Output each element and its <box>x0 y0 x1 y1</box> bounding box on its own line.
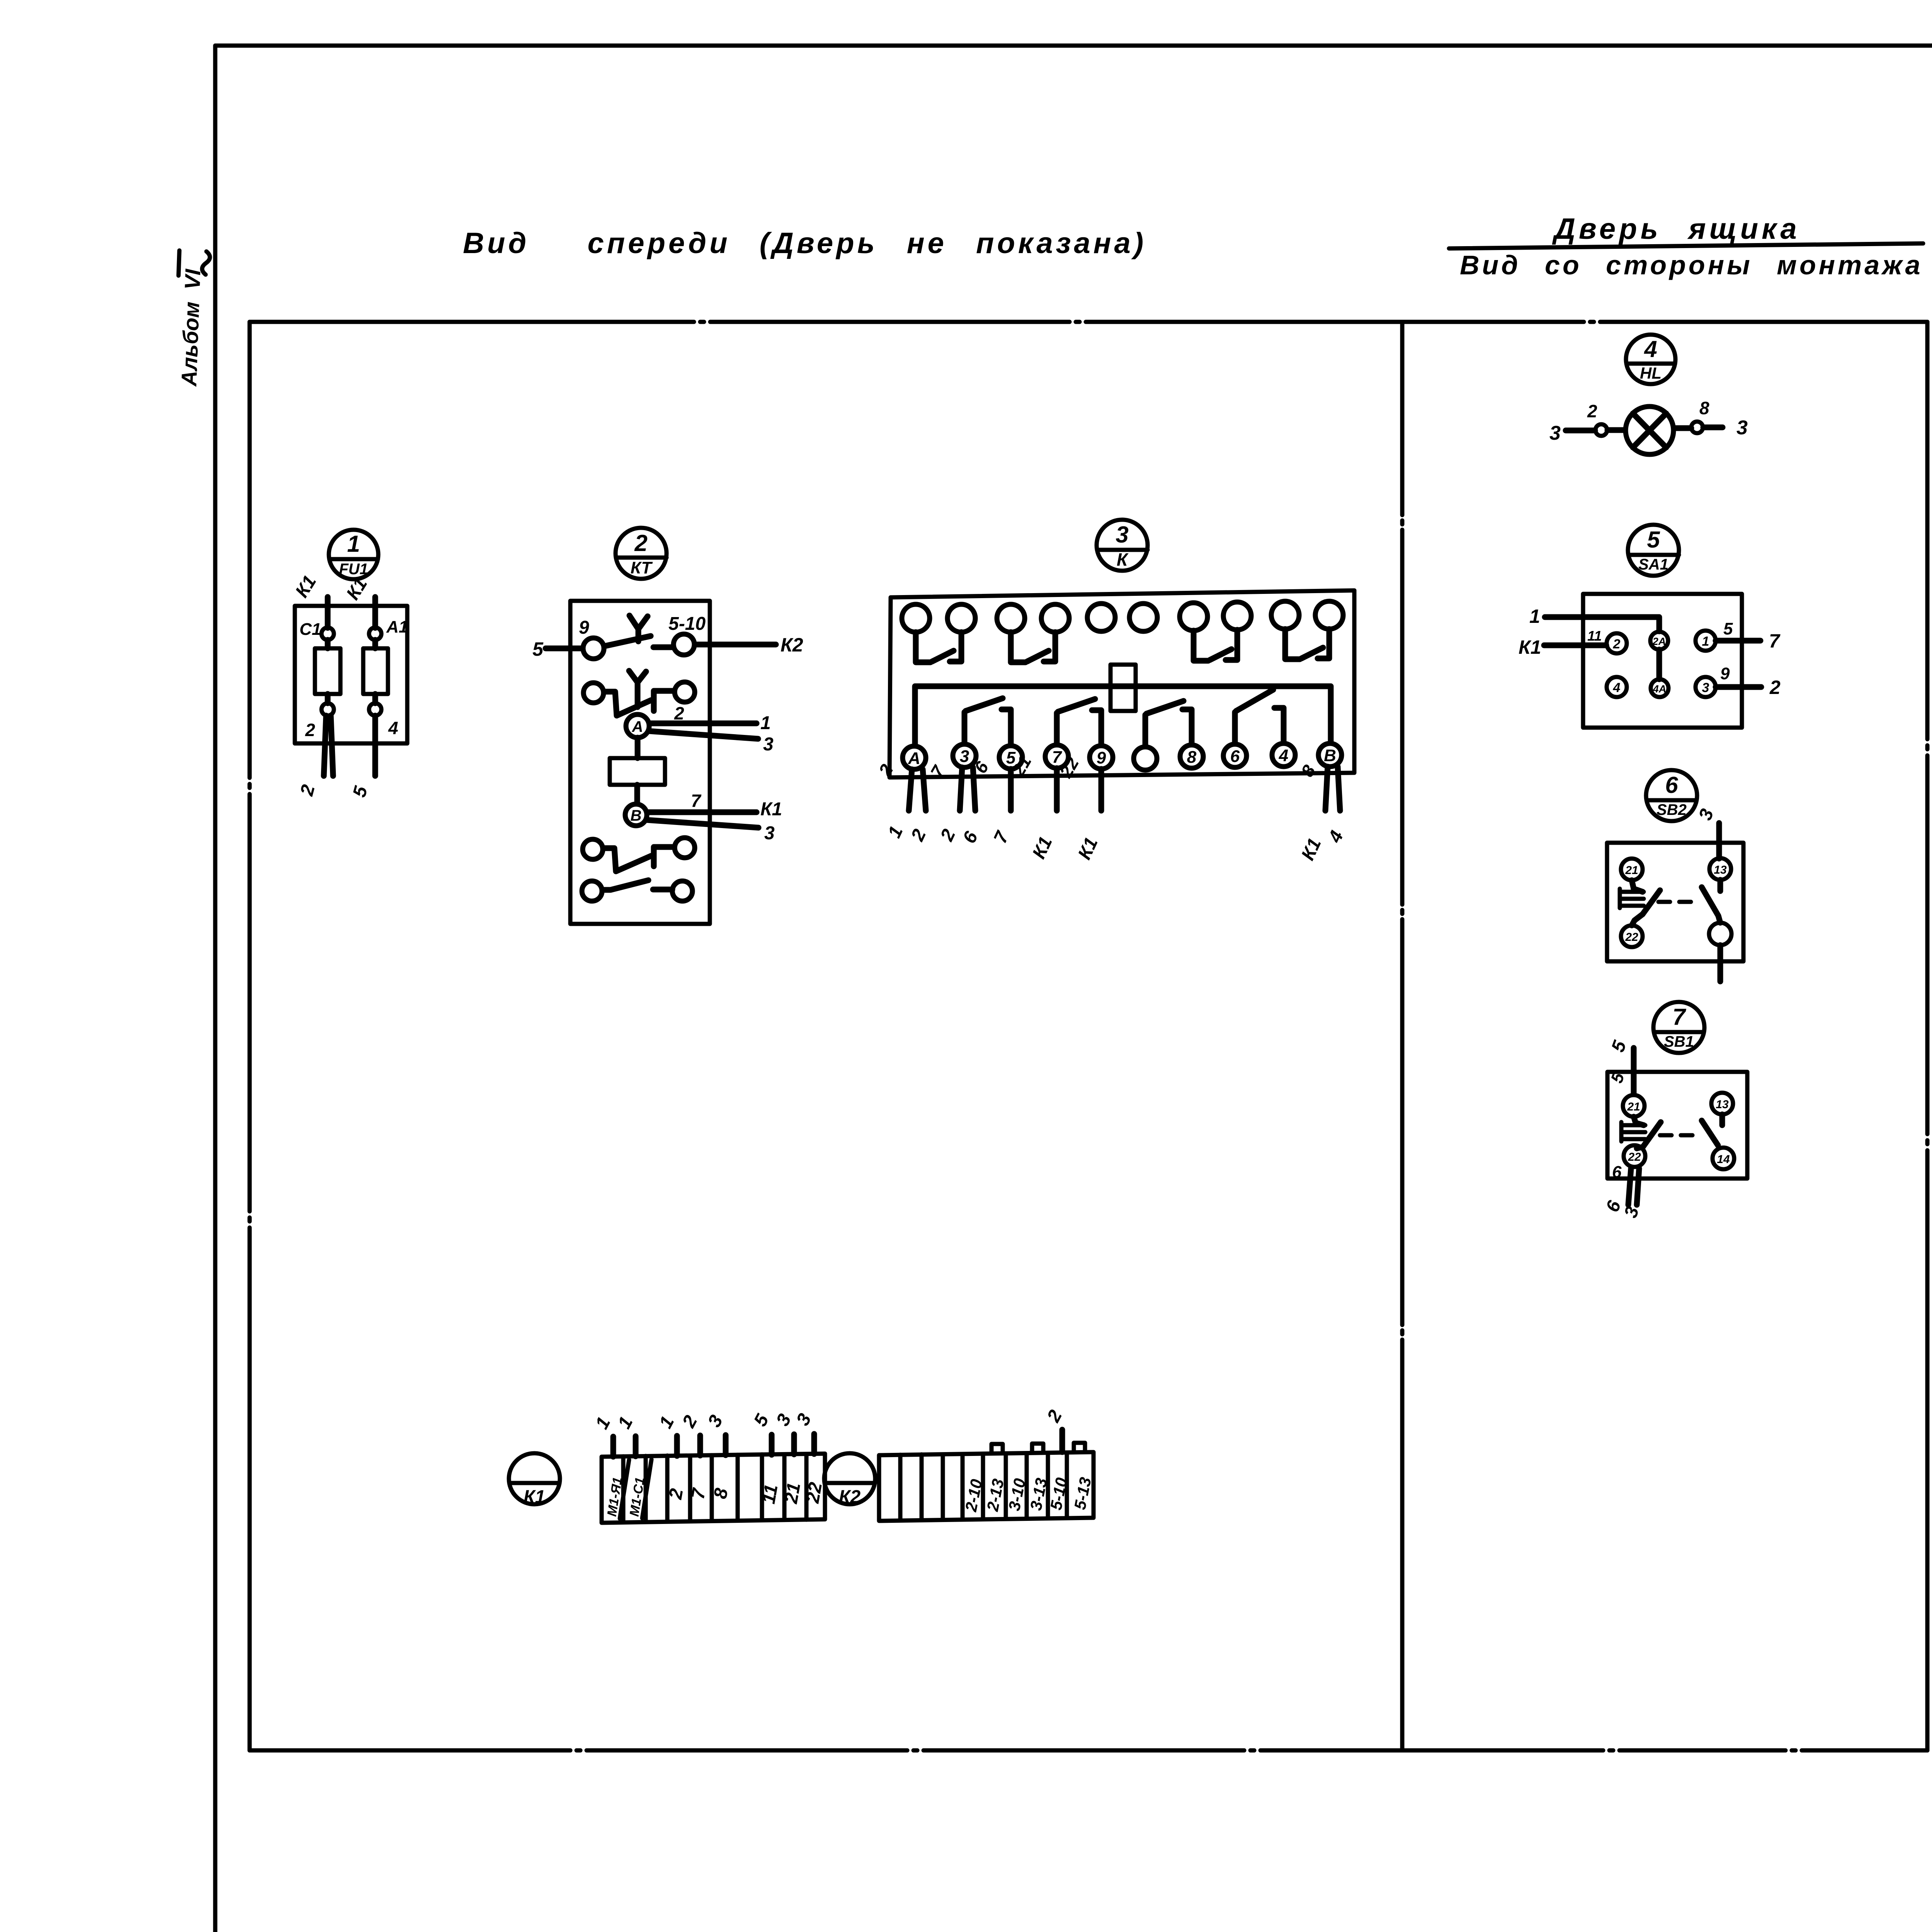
svg-text:11: 11 <box>759 1483 782 1505</box>
svg-text:В: В <box>1324 746 1336 765</box>
svg-text:Вид со стороны монтажа: Вид со стороны монтажа <box>1460 250 1923 280</box>
svg-text:3: 3 <box>763 734 774 755</box>
svg-text:Вид спереди (Дверь не показан: Вид спереди (Дверь не показана) <box>463 227 1146 260</box>
svg-text:4А: 4А <box>1653 683 1667 695</box>
svg-text:1: 1 <box>760 713 771 733</box>
svg-text:3: 3 <box>1736 417 1748 439</box>
svg-text:1: 1 <box>1702 634 1709 649</box>
svg-text:21: 21 <box>781 1481 804 1505</box>
svg-text:К: К <box>1117 549 1129 570</box>
svg-text:6: 6 <box>1230 747 1240 766</box>
svg-text:4: 4 <box>388 718 398 738</box>
svg-text:3: 3 <box>764 823 775 844</box>
svg-text:Альбом VI: Альбом VI <box>177 268 205 387</box>
svg-text:4: 4 <box>1644 336 1657 362</box>
svg-text:9: 9 <box>579 617 589 638</box>
svg-text:В: В <box>631 807 642 824</box>
svg-text:8: 8 <box>1187 748 1197 767</box>
svg-text:13: 13 <box>1714 864 1727 876</box>
svg-text:2: 2 <box>634 530 647 556</box>
svg-text:5: 5 <box>1723 619 1733 638</box>
svg-text:HL: HL <box>1640 364 1662 382</box>
svg-text:3: 3 <box>1702 680 1709 695</box>
svg-text:8: 8 <box>1699 398 1709 418</box>
svg-text:22: 22 <box>1625 931 1638 944</box>
svg-text:9: 9 <box>1720 664 1730 683</box>
svg-text:7: 7 <box>1769 630 1781 652</box>
svg-text:SA1: SA1 <box>1638 556 1668 573</box>
svg-text:К2: К2 <box>781 634 803 656</box>
svg-text:13: 13 <box>1716 1098 1729 1111</box>
svg-text:6: 6 <box>1612 1163 1622 1182</box>
svg-text:SB1: SB1 <box>1664 1033 1694 1050</box>
svg-text:3: 3 <box>1116 522 1128 548</box>
svg-text:1: 1 <box>1529 605 1540 627</box>
svg-text:9: 9 <box>1097 748 1106 767</box>
svg-text:21: 21 <box>1625 864 1638 877</box>
svg-text:К1: К1 <box>760 799 782 820</box>
svg-text:22: 22 <box>802 1481 826 1505</box>
svg-text:1: 1 <box>347 531 360 557</box>
svg-text:14: 14 <box>1717 1153 1730 1166</box>
svg-text:4: 4 <box>1613 680 1621 695</box>
svg-text:А: А <box>632 718 643 735</box>
svg-text:7: 7 <box>1672 1004 1686 1030</box>
svg-text:КТ: КТ <box>631 558 653 577</box>
svg-text:2: 2 <box>1613 637 1621 651</box>
svg-text:5: 5 <box>1647 527 1660 553</box>
svg-text:3: 3 <box>960 747 969 766</box>
svg-text:5: 5 <box>532 638 544 660</box>
svg-text:2: 2 <box>1769 677 1781 698</box>
svg-text:3: 3 <box>1549 422 1561 444</box>
svg-text:К2: К2 <box>839 1487 861 1507</box>
svg-text:К1: К1 <box>524 1487 545 1507</box>
svg-text:21: 21 <box>1627 1100 1640 1113</box>
svg-text:К1: К1 <box>1519 636 1541 658</box>
svg-text:С1: С1 <box>299 620 321 639</box>
svg-text:2А: 2А <box>1652 636 1666 647</box>
svg-text:5-10: 5-10 <box>668 614 706 634</box>
svg-text:6: 6 <box>1665 772 1678 798</box>
svg-text:SB2: SB2 <box>1656 801 1687 818</box>
svg-text:Дверь ящика: Дверь ящика <box>1552 213 1800 245</box>
svg-text:11: 11 <box>1587 628 1602 644</box>
svg-text:4: 4 <box>1279 746 1288 765</box>
svg-text:7: 7 <box>691 791 702 811</box>
svg-text:А: А <box>908 749 920 768</box>
svg-text:2: 2 <box>305 720 315 740</box>
svg-text:А1: А1 <box>386 617 408 636</box>
svg-text:22: 22 <box>1628 1151 1641 1163</box>
svg-text:2: 2 <box>1587 401 1597 421</box>
svg-text:2: 2 <box>674 703 684 723</box>
